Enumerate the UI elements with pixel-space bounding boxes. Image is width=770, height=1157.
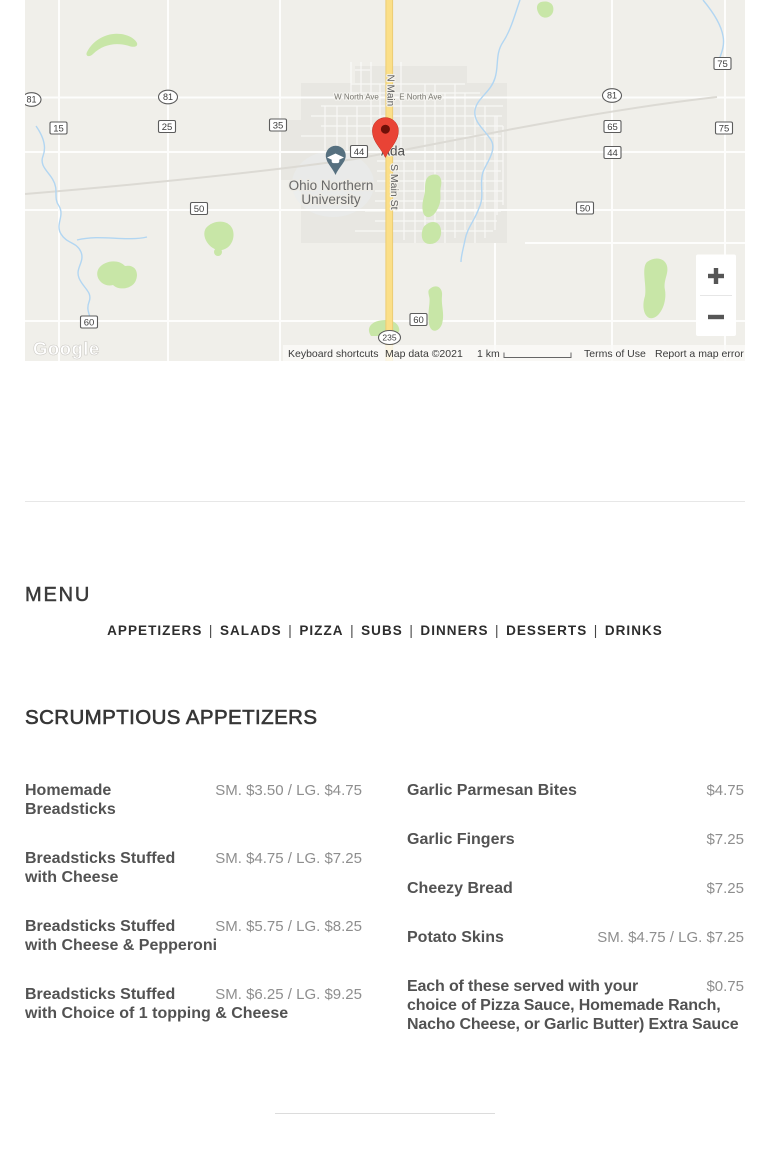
svg-text:Terms of Use: Terms of Use xyxy=(584,348,646,360)
svg-text:University: University xyxy=(301,192,361,207)
svg-text:25: 25 xyxy=(162,122,173,133)
svg-text:75: 75 xyxy=(717,59,728,70)
svg-text:S Main St: S Main St xyxy=(388,164,400,210)
svg-text:Map data ©2021: Map data ©2021 xyxy=(385,348,463,360)
svg-text:60: 60 xyxy=(413,315,424,326)
svg-text:44: 44 xyxy=(354,147,365,158)
svg-text:65: 65 xyxy=(607,122,618,133)
svg-text:60: 60 xyxy=(84,318,95,329)
svg-text:235: 235 xyxy=(382,333,396,343)
svg-text:15: 15 xyxy=(53,124,64,135)
svg-text:81: 81 xyxy=(607,91,617,101)
svg-text:N Main: N Main xyxy=(385,75,396,107)
svg-text:Ohio Northern: Ohio Northern xyxy=(289,178,374,193)
svg-text:Google: Google xyxy=(33,338,100,359)
svg-text:Keyboard shortcuts: Keyboard shortcuts xyxy=(288,348,378,360)
svg-text:81: 81 xyxy=(163,92,173,102)
svg-text:35: 35 xyxy=(273,121,284,132)
svg-text:81: 81 xyxy=(26,95,36,105)
svg-text:75: 75 xyxy=(719,124,730,135)
svg-text:44: 44 xyxy=(607,148,618,159)
svg-text:50: 50 xyxy=(580,204,591,215)
svg-text:E North Ave: E North Ave xyxy=(399,93,442,102)
svg-text:Report a map error: Report a map error xyxy=(655,348,744,360)
svg-text:50: 50 xyxy=(194,204,205,215)
svg-text:1 km: 1 km xyxy=(477,348,500,360)
svg-text:W North Ave: W North Ave xyxy=(334,93,379,102)
